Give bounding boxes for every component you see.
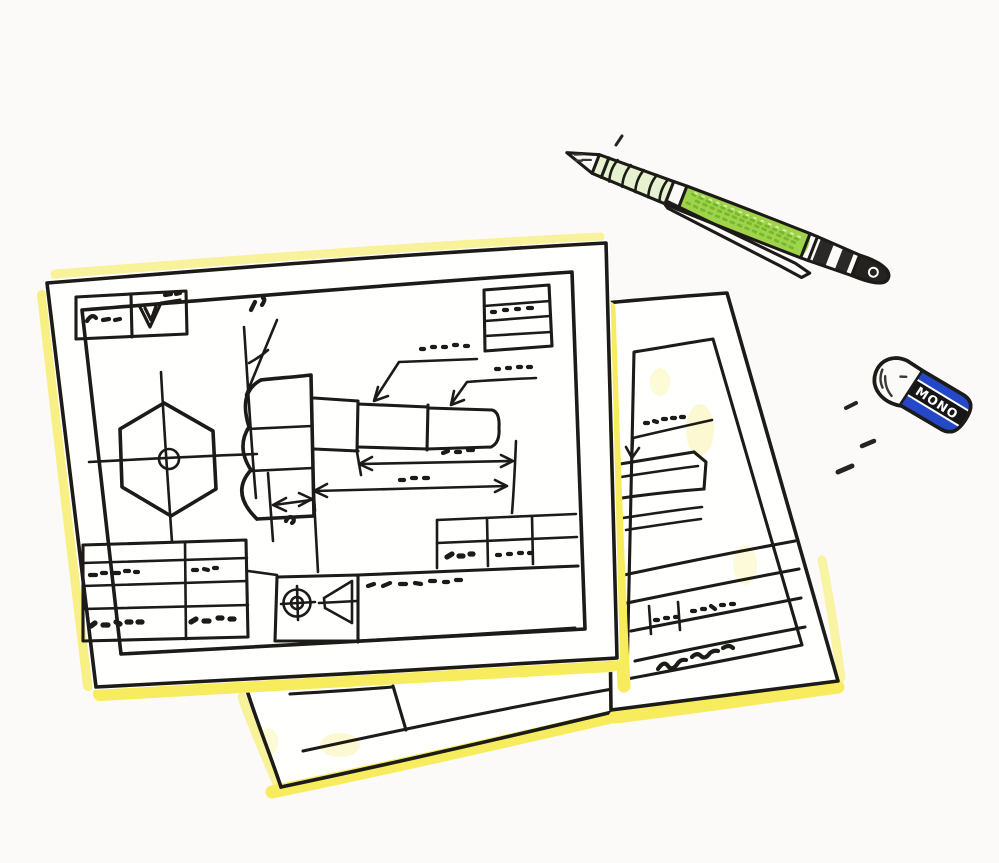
title-scribble-row2-right [193, 568, 217, 570]
sketch-canvas: MONO [0, 0, 999, 863]
surface-finish-dashes [165, 293, 180, 295]
dimension-b-scribble [400, 478, 428, 480]
front-sheet [44, 240, 620, 690]
